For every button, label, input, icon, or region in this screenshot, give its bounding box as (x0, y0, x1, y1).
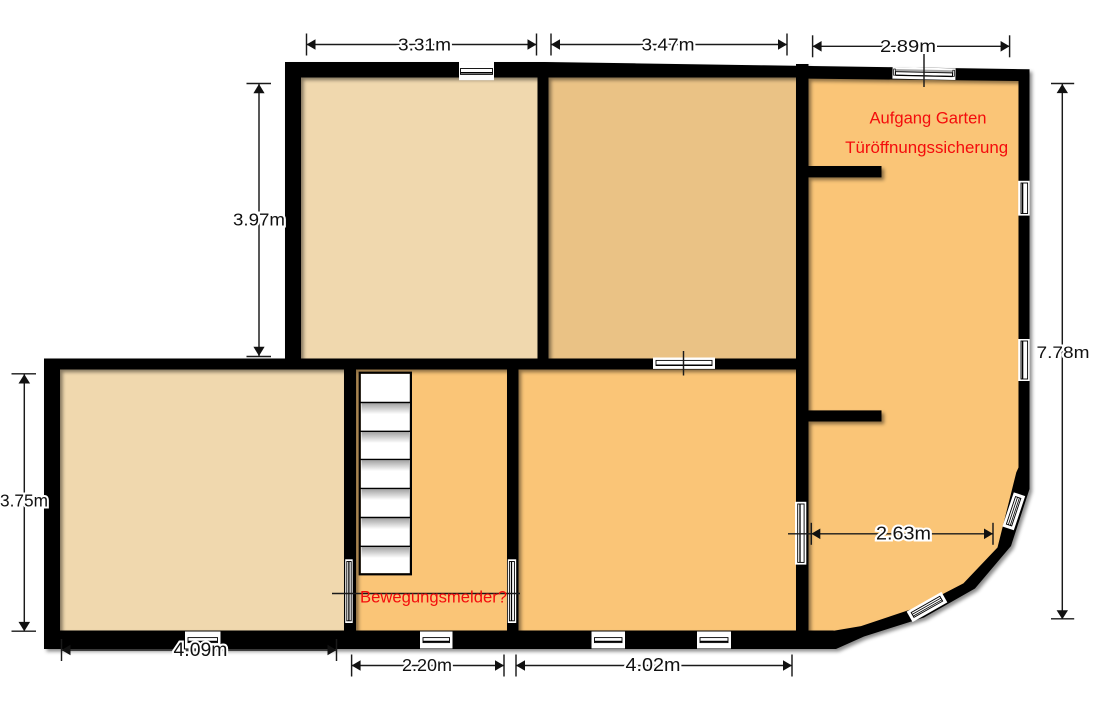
svg-text:Bewegungsmelder?: Bewegungsmelder? (360, 587, 507, 606)
svg-text:3.75m: 3.75m (0, 491, 48, 511)
svg-text:3.97m: 3.97m (233, 210, 285, 230)
svg-text:4.02m: 4.02m (626, 655, 681, 675)
svg-text:3.47m: 3.47m (642, 34, 695, 54)
svg-text:Aufgang Garten: Aufgang Garten (870, 109, 987, 128)
svg-text:2.63m: 2.63m (876, 523, 931, 543)
svg-text:2.20m: 2.20m (402, 655, 452, 675)
svg-text:4.09m: 4.09m (174, 639, 228, 661)
svg-text:7.78m: 7.78m (1037, 343, 1090, 362)
svg-text:3.31m: 3.31m (398, 34, 451, 54)
svg-text:Türöffnungssicherung: Türöffnungssicherung (845, 138, 1008, 157)
svg-text:2.89m: 2.89m (880, 36, 936, 56)
